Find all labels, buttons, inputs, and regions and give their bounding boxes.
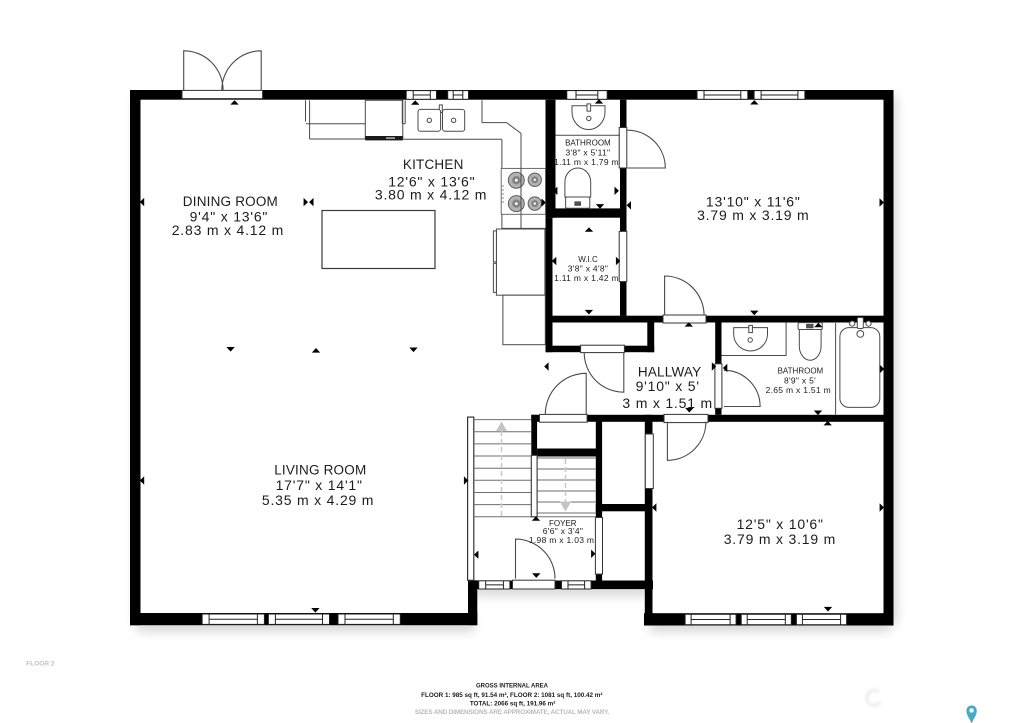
svg-text:GROSS INTERNAL AREA: GROSS INTERNAL AREA [476,683,549,689]
svg-text:HALLWAY: HALLWAY [638,364,701,379]
svg-text:W.I.C: W.I.C [578,255,598,264]
svg-text:17'7" x 14'1": 17'7" x 14'1" [276,477,363,493]
svg-text:9'10" x 5': 9'10" x 5' [636,378,700,394]
svg-text:3.79 m x 3.19 m: 3.79 m x 3.19 m [724,531,836,547]
svg-text:SIZES AND DIMENSIONS ARE APPRO: SIZES AND DIMENSIONS ARE APPROXIMATE, AC… [415,709,610,716]
svg-text:1.11 m x 1.79 m: 1.11 m x 1.79 m [554,157,619,167]
svg-text:1.11 m x 1.42 m: 1.11 m x 1.42 m [554,273,619,283]
svg-text:2.65 m x 1.51 m: 2.65 m x 1.51 m [766,385,831,395]
svg-text:TOTAL: 2066 sq ft, 191.96 m²: TOTAL: 2066 sq ft, 191.96 m² [470,700,556,707]
svg-text:DINING ROOM: DINING ROOM [183,194,278,209]
svg-text:5.35 m x 4.29 m: 5.35 m x 4.29 m [262,492,374,508]
svg-text:FLOOR 2: FLOOR 2 [26,661,55,668]
svg-text:3.79 m x 3.19 m: 3.79 m x 3.19 m [697,207,809,223]
svg-text:BATHROOM: BATHROOM [778,367,824,376]
svg-text:LIVING ROOM: LIVING ROOM [274,463,366,478]
svg-text:3.80 m x 4.12 m: 3.80 m x 4.12 m [375,186,487,202]
svg-text:BATHROOM: BATHROOM [565,139,611,148]
svg-text:FLOOR 1: 985 sq ft, 91.54 m²,: FLOOR 1: 985 sq ft, 91.54 m², FLOOR 2: 1… [421,692,602,699]
svg-text:12'5" x 10'6": 12'5" x 10'6" [737,516,824,532]
svg-text:KITCHEN: KITCHEN [403,157,464,172]
svg-text:3 m x 1.51 m: 3 m x 1.51 m [622,395,713,411]
svg-text:2.83 m x 4.12 m: 2.83 m x 4.12 m [172,222,284,238]
svg-text:1.98 m x 1.03 m: 1.98 m x 1.03 m [529,535,594,545]
svg-text:3'8" x 4'8": 3'8" x 4'8" [568,264,608,274]
